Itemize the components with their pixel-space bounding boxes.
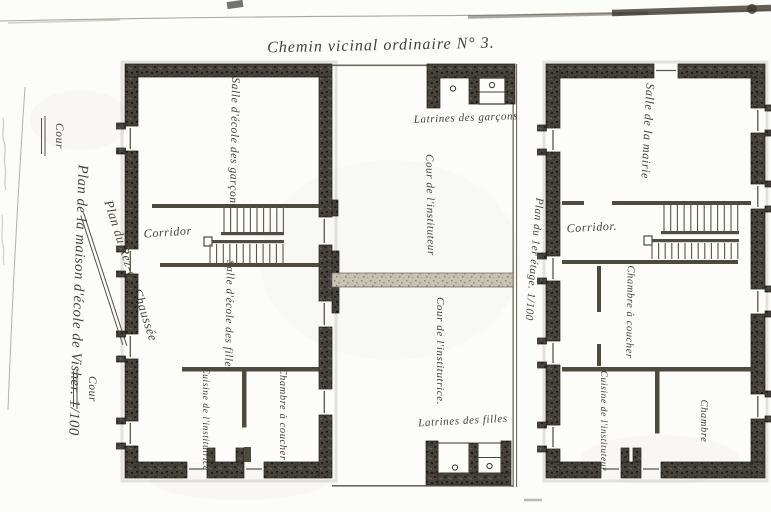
left-stair-stringer-lower (207, 240, 284, 243)
latrines-filles-structure (426, 441, 511, 485)
left-stair-stringer-upper (221, 232, 284, 235)
latrines-garcons-structure (427, 64, 515, 108)
label-cuisine-instituteur: Cuisine de l'instituteur (598, 371, 608, 472)
label-salle-filles: Salle d'école des filles (222, 260, 236, 372)
courtyard-divider-wall (332, 273, 513, 287)
label-chambre: Chambre (698, 400, 709, 443)
label-salle-garcons: Salle d'école des garçons (227, 77, 241, 209)
left-stair-newel (204, 237, 212, 246)
label-cour-bottom: Cour (86, 376, 98, 402)
latrine-stall (438, 443, 469, 473)
right-stair-newel (644, 236, 652, 245)
label-chambre-coucher-left: Chambre à coucher (277, 367, 288, 461)
right-stair-stringer-lower (647, 239, 739, 242)
floor-plan-drawing: Chemin vicinal ordinaire N° 3. Cour Plan… (0, 0, 771, 512)
scanned-floor-plan-page: Chemin vicinal ordinaire N° 3. Cour Plan… (0, 0, 771, 512)
label-chambre-coucher-right: Chambre à coucher (623, 265, 636, 359)
label-corridor-right: Corridor. (566, 219, 617, 236)
label-cuisine-institutrice: Cuisine de l'institutrice (200, 367, 210, 471)
label-cour-instituteur: Cour de l'instituteur (423, 154, 437, 256)
right-stair-stringer-upper (661, 231, 739, 234)
label-cour-institutrice: Cour de l'institutrice. (434, 297, 446, 405)
label-cour-top: Cour (53, 123, 65, 149)
